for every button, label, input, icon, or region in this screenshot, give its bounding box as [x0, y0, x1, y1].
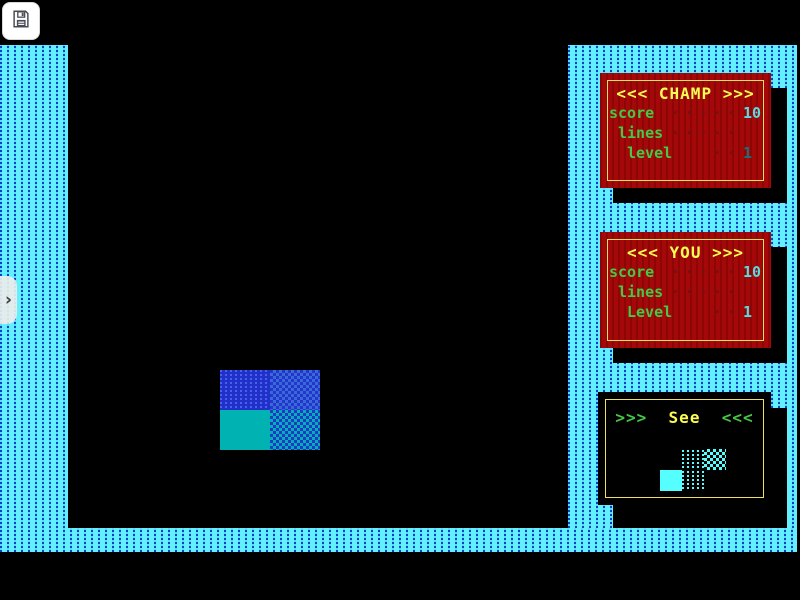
chevron-right-icon: › [5, 290, 12, 310]
game-screen: <<< CHAMP >>> score ····· 10 lines ·····… [0, 0, 800, 600]
preview-block-top-left [682, 449, 704, 470]
piece-block-top-right [270, 370, 320, 410]
piece-block-bottom-right [270, 410, 320, 450]
piece-block-top-left [220, 370, 270, 410]
preview-block-top-right [704, 449, 726, 470]
frame-bottom-border [0, 528, 797, 552]
champ-score-panel: <<< CHAMP >>> score ····· 10 lines ·····… [600, 73, 771, 188]
preview-block-bottom-left [660, 470, 682, 491]
preview-block-bottom-right [682, 470, 704, 491]
champ-panel-border [607, 80, 764, 181]
next-piece-panel: >>> See <<< [598, 392, 771, 505]
you-score-panel: <<< YOU >>> score ····· 10 lines ····· L… [600, 232, 771, 348]
you-panel-border [607, 239, 764, 341]
floppy-disk-icon [10, 8, 32, 34]
save-button[interactable] [2, 2, 40, 40]
piece-block-bottom-left [220, 410, 270, 450]
sidebar-expand-tab[interactable]: › [0, 276, 17, 324]
